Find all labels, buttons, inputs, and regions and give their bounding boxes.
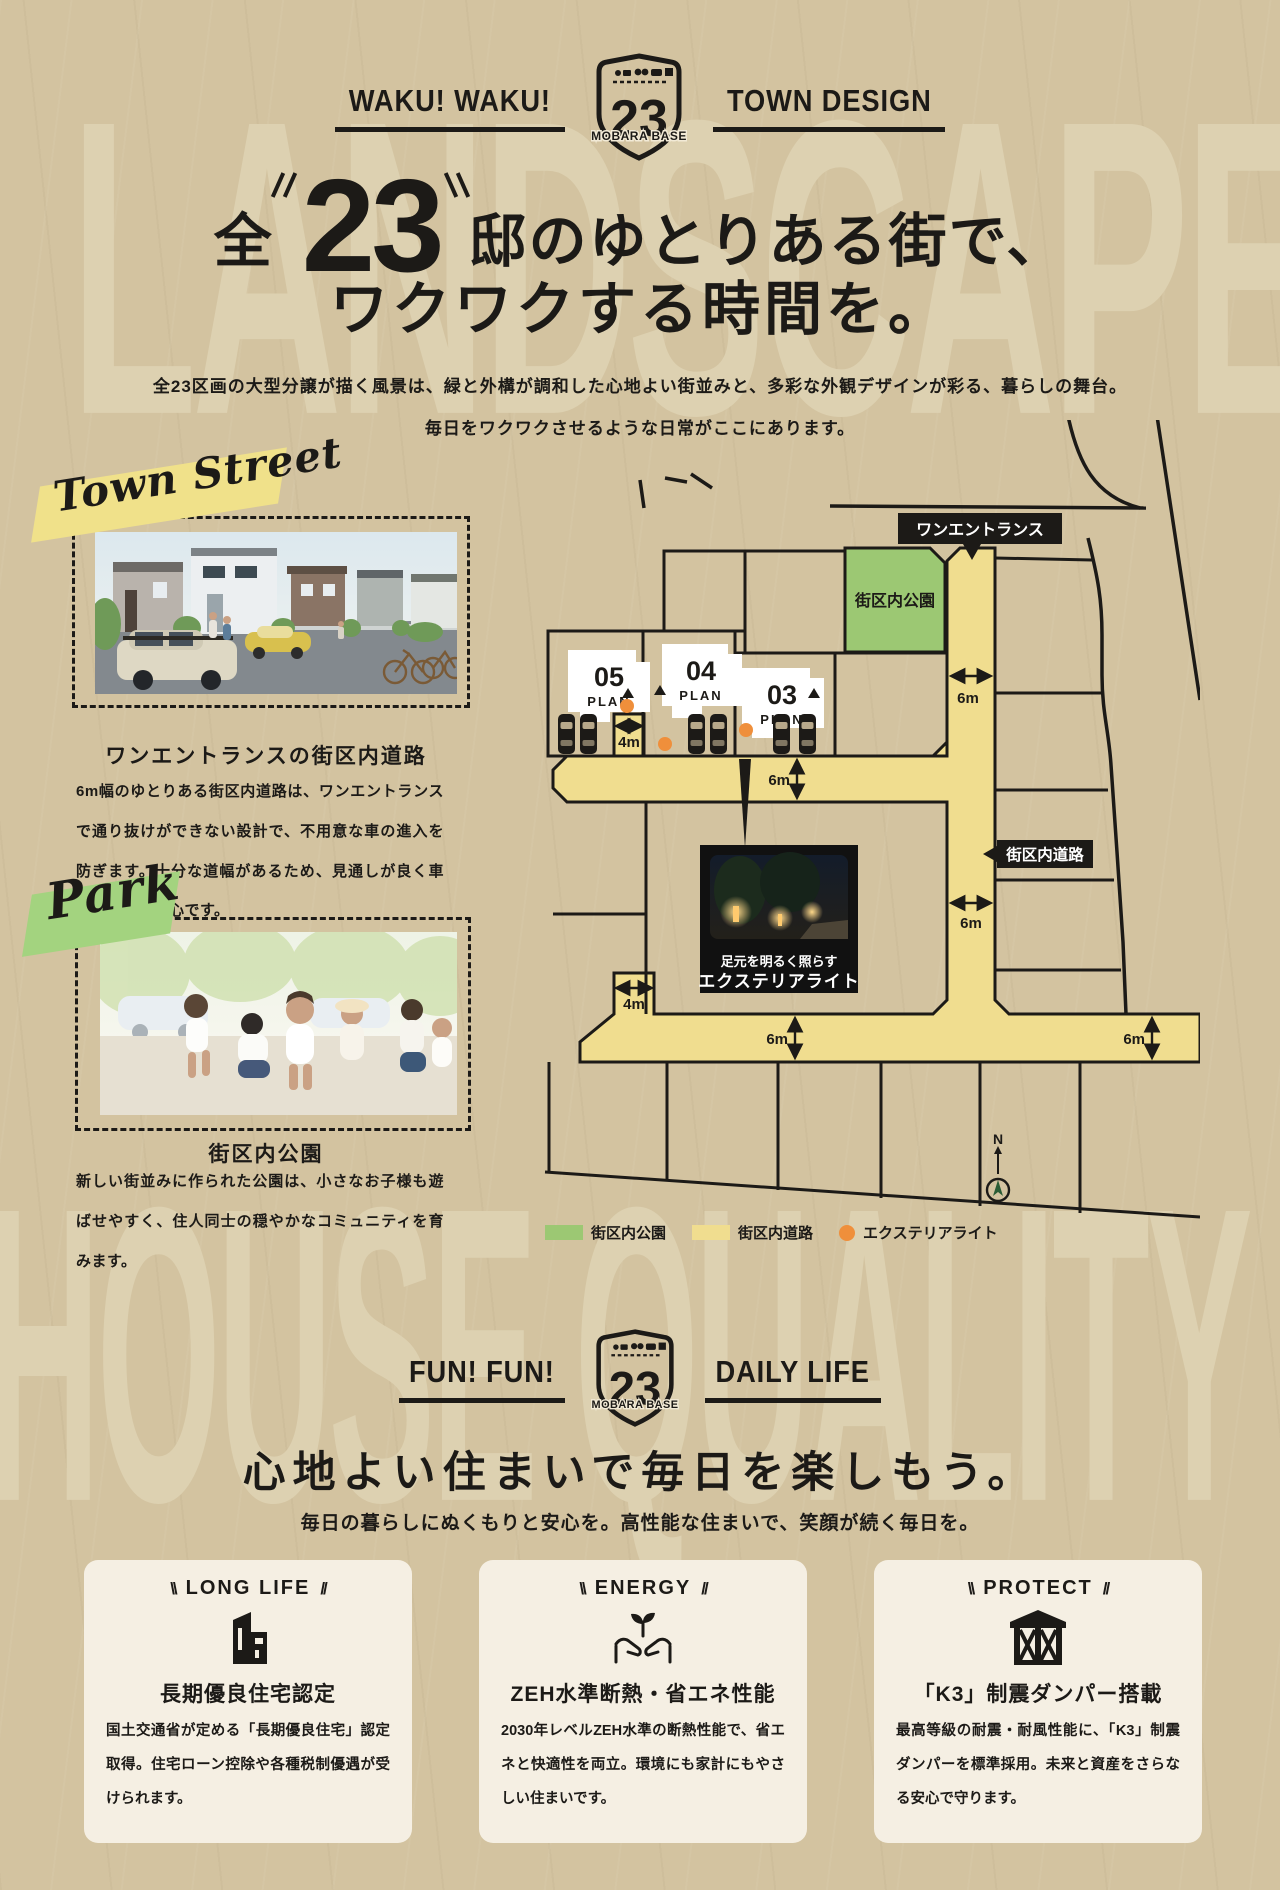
svg-text:4m: 4m (618, 734, 640, 751)
flyer-page: LANDSCAPE HOUSE QUALITY WAKU! WAKU! 23 M… (0, 0, 1280, 1890)
daily-heading: 心地よい住まいで毎日を楽しもう。 (0, 1438, 1280, 1500)
site-map: 街区内公園 (440, 420, 1200, 1225)
shield-logo-23-daily: 23 MOBARA BASE (591, 1328, 679, 1428)
daily-badge-row: FUN! FUN! 23 MOBARA BASE DAILY LIFE (0, 1328, 1280, 1428)
card-long-life: \\ LONG LIFE // 長期優良住宅認定 国土交通省が定める「長期優良住… (84, 1560, 412, 1843)
card-body: 2030年レベルZEH水準の断熱性能で、省エネと快適性を両立。環境にも家計にもや… (479, 1714, 807, 1816)
town-street-heading: ワンエントランスの街区内道路 (66, 740, 466, 770)
parked-cars (558, 714, 816, 754)
badge-waku-label: WAKU! WAKU! (349, 83, 551, 119)
exterior-light-callout: 足元を明るく照らす エクステリアライト (698, 845, 860, 993)
tag-mark-right: // (701, 1579, 706, 1599)
tag-mark-right: // (320, 1579, 325, 1599)
badge-town-design-label: TOWN DESIGN (726, 83, 931, 119)
card-protect: \\ PROTECT // 「K3」制震ダンパー搭載 最高等級の耐震・耐風性能に… (874, 1560, 1202, 1843)
legend-light: エクステリアライト (839, 1222, 998, 1243)
tag-long-life: LONG LIFE (186, 1577, 311, 1600)
svg-text:エクステリアライト: エクステリアライト (698, 972, 860, 991)
legend-road-label: 街区内道路 (738, 1222, 813, 1243)
svg-text:03: 03 (767, 680, 797, 710)
svg-text:PLAN: PLAN (679, 688, 722, 703)
shield-mini-icons (613, 1343, 666, 1350)
hero-title-line1: 全 23 邸のゆとりある街で、 (0, 140, 1280, 282)
badge-fun-label: FUN! FUN! (409, 1354, 555, 1390)
card-body: 最高等級の耐震・耐風性能に、「K3」制震ダンパーを標準採用。未来と資産をさらなる… (874, 1714, 1202, 1816)
card-tag: \\ LONG LIFE // (170, 1577, 326, 1600)
map-park-label: 街区内公園 (854, 591, 935, 610)
plan-05: 05 PLAN (568, 650, 650, 722)
svg-text:6m: 6m (766, 1031, 788, 1048)
card-energy: \\ ENERGY // ZEH水準断熱・省エネ性能 2030年レベルZEH水準… (479, 1560, 807, 1843)
compass: N (978, 1130, 1018, 1215)
road-swatch (692, 1225, 730, 1240)
svg-text:6m: 6m (957, 690, 979, 707)
damper-house-icon (1008, 1608, 1068, 1670)
road-label: 街区内道路 (983, 840, 1093, 868)
svg-text:05: 05 (594, 662, 624, 692)
card-tag: \\ PROTECT // (968, 1577, 1108, 1600)
svg-text:4m: 4m (623, 996, 645, 1013)
underline (399, 1398, 565, 1403)
legend-road: 街区内道路 (692, 1222, 813, 1243)
tag-mark-left: \\ (170, 1579, 175, 1599)
tag-mark-left: \\ (968, 1579, 973, 1599)
underline (713, 127, 946, 132)
tag-protect: PROTECT (983, 1577, 1093, 1600)
tag-energy: ENERGY (595, 1577, 691, 1600)
light-swatch (839, 1225, 855, 1241)
badge-daily-life-label: DAILY LIFE (716, 1354, 870, 1390)
svg-text:6m: 6m (768, 772, 790, 789)
map-legend: 街区内公園 街区内道路 エクステリアライト (545, 1222, 998, 1243)
park-body: 新しい街並みに作られた公園は、小さなお子様も遊ばせやすく、住人同士の穏やかなコミ… (76, 1162, 444, 1281)
card-title: ZEH水準断熱・省エネ性能 (511, 1678, 776, 1708)
compass-n-label: N (993, 1131, 1003, 1147)
shield-mini-icons (615, 68, 673, 76)
card-title: 長期優良住宅認定 (160, 1678, 336, 1708)
badge-left-text: WAKU! WAKU! (335, 83, 565, 132)
hero-intro-line1: 全23区画の大型分譲が描く風景は、緑と外構が調和した心地よい街並みと、多彩な外観… (0, 372, 1280, 397)
card-body: 国土交通省が定める「長期優良住宅」認定取得。住宅ローン控除や各種税制優遇が受けら… (84, 1714, 412, 1816)
badge-daily-life-text: DAILY LIFE (705, 1354, 880, 1403)
svg-text:6m: 6m (1123, 1031, 1145, 1048)
house-icon (219, 1608, 277, 1670)
plan-04: 04 PLAN (662, 644, 742, 718)
legend-park: 街区内公園 (545, 1222, 666, 1243)
svg-text:6m: 6m (960, 915, 982, 932)
badge-right-text: TOWN DESIGN (713, 83, 946, 132)
eco-hands-icon (612, 1608, 674, 1670)
badge-fun-text: FUN! FUN! (399, 1354, 565, 1403)
svg-text:04: 04 (686, 656, 716, 686)
park-swatch (545, 1225, 583, 1240)
card-tag: \\ ENERGY // (579, 1577, 706, 1600)
legend-park-label: 街区内公園 (591, 1222, 666, 1243)
svg-text:ワンエントランス: ワンエントランス (916, 522, 1044, 539)
svg-text:足元を明るく照らす: 足元を明るく照らす (721, 954, 838, 969)
tag-mark-left: \\ (579, 1579, 584, 1599)
park-photo (100, 932, 457, 1115)
shield-name: MOBARA BASE (592, 1399, 679, 1411)
town-street-photo (95, 532, 457, 694)
daily-sub: 毎日の暮らしにぬくもりと安心を。高性能な住まいで、笑顔が続く毎日を。 (0, 1508, 1280, 1535)
hero-title-line2: ワクワクする時間を。 (0, 262, 1280, 346)
tag-mark-right: // (1103, 1579, 1108, 1599)
underline (335, 127, 565, 132)
underline (705, 1398, 880, 1403)
svg-text:街区内道路: 街区内道路 (1005, 845, 1084, 864)
card-title: 「K3」制震ダンパー搭載 (914, 1678, 1163, 1708)
legend-light-label: エクステリアライト (863, 1222, 998, 1243)
